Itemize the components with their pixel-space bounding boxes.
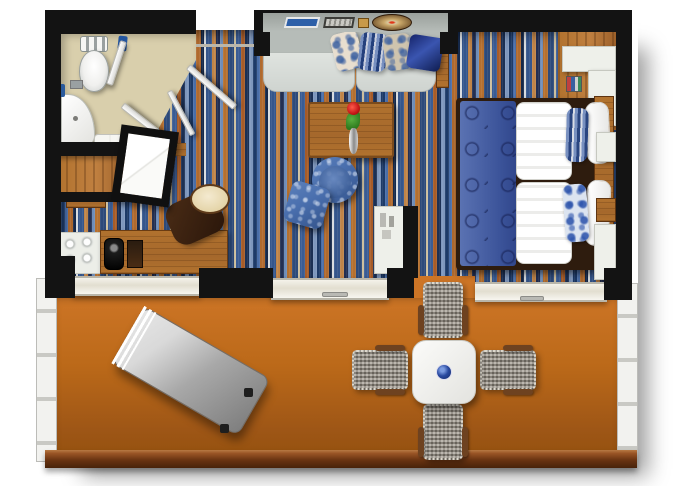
minibar-bottles — [378, 212, 398, 242]
wall-bedroom-stub — [440, 30, 458, 54]
balcony-railing-right — [617, 283, 638, 467]
mattress-top — [516, 102, 572, 180]
table-bowl — [436, 364, 452, 380]
wall-corner-left — [45, 256, 75, 298]
nightstand-top — [596, 132, 616, 162]
balcony-railing-left — [36, 278, 57, 462]
vanity-drain-dot — [73, 116, 78, 121]
ledge-platter — [372, 14, 412, 31]
bed-pillow-floral — [562, 183, 590, 243]
lounger-foot-right — [220, 424, 229, 433]
window-right-handle[interactable] — [520, 296, 544, 301]
rose-vase — [349, 128, 358, 154]
lounger-foot-left — [244, 388, 253, 397]
shelf-books — [566, 76, 582, 92]
ledge-box-gold — [358, 18, 369, 28]
wall-bottom-mid2 — [387, 268, 414, 298]
dining-chair-east[interactable] — [480, 350, 536, 390]
wall-top-left — [45, 10, 196, 34]
desk-chair-seat[interactable] — [190, 184, 230, 214]
ledge-tray-blue — [284, 17, 321, 28]
desk-tray — [127, 240, 143, 268]
floor-plan-canvas — [0, 0, 680, 486]
mirror-panel — [111, 124, 179, 207]
wall-corner-right — [604, 268, 632, 300]
balcony-railing-bottom — [45, 450, 637, 468]
coffee-machine[interactable] — [104, 238, 124, 270]
toilet-bowl — [79, 50, 109, 92]
bed-runner-swirl — [460, 101, 516, 266]
dining-chair-south[interactable] — [423, 404, 463, 460]
window-left — [73, 276, 201, 296]
sliding-door-handle[interactable] — [322, 292, 348, 297]
bed-pillow-striped — [565, 108, 589, 163]
wall-right — [616, 10, 632, 300]
shelf-tray — [70, 80, 83, 89]
dining-chair-west[interactable] — [352, 350, 408, 390]
wall-bottom-mid1 — [199, 268, 273, 298]
rose-bloom — [347, 102, 360, 115]
entry-track-line — [196, 44, 254, 47]
sofa-pillow-navy — [406, 34, 445, 73]
bedside-wood-shelf — [596, 198, 616, 222]
corner-cabinet-top — [562, 46, 616, 72]
ledge-tray-striped — [323, 17, 355, 28]
dining-chair-north[interactable] — [423, 282, 463, 338]
